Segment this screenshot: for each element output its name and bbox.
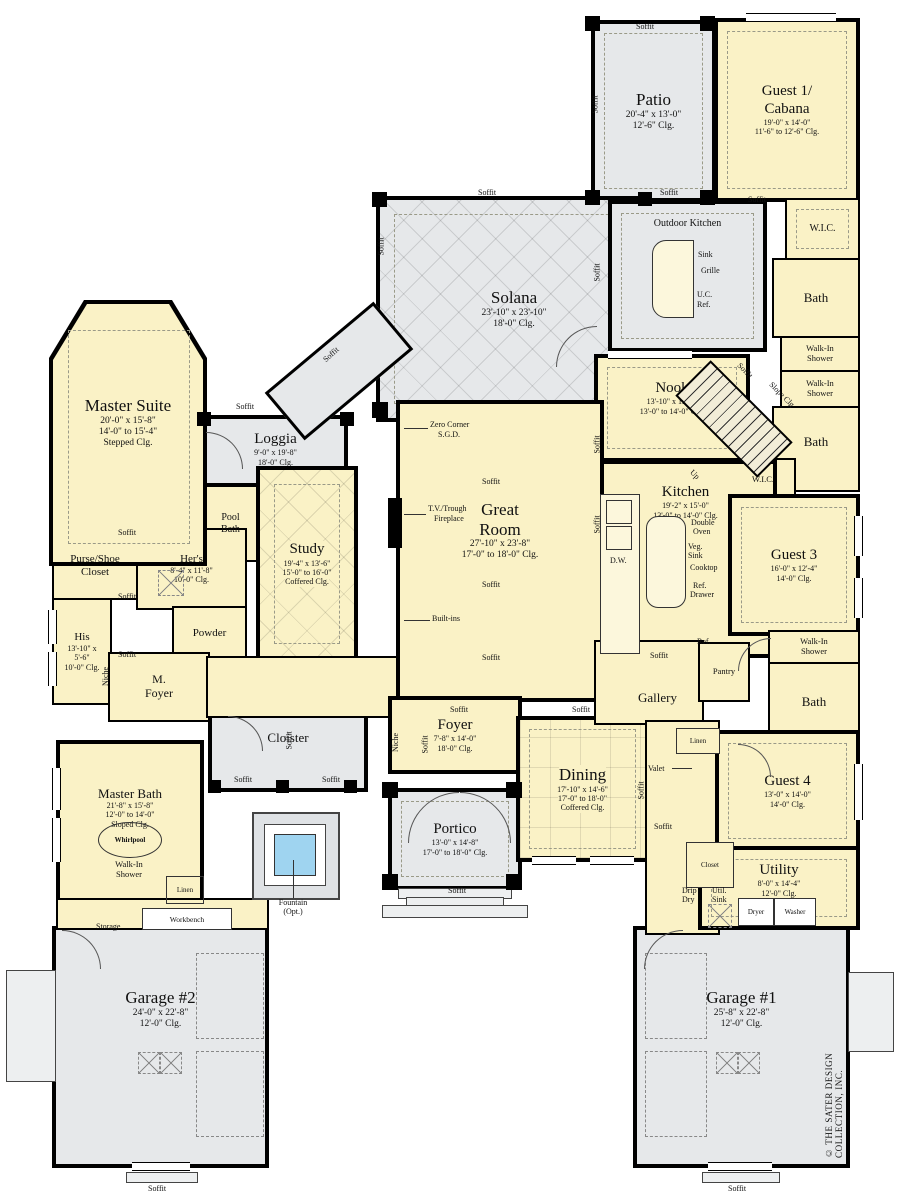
room-his-closet: His 13'-10" x 5'-6" 10'-0" Clg.: [52, 598, 112, 705]
soffit-label: Soffit: [654, 822, 672, 831]
fountain-name: Fountain: [279, 898, 307, 907]
soffit-label: Soffit: [236, 402, 254, 411]
leader-line: [404, 428, 428, 429]
hers-island: [158, 570, 184, 596]
soffit-label: Soffit: [593, 515, 602, 533]
room-name: Shower: [807, 354, 833, 364]
room-name: Bath: [804, 290, 829, 305]
room-dims: 16'-0" x 12'-4": [771, 564, 818, 573]
column-pier: [700, 16, 715, 31]
soffit-label: Soffit: [118, 650, 136, 659]
uc-ref-label: U.C.: [697, 290, 712, 299]
garage1-door: [708, 1162, 772, 1171]
room-name: Garage #1: [706, 988, 776, 1008]
cooktop-label: Cooktop: [690, 563, 718, 572]
kitchen-sink: [606, 526, 632, 550]
room-dims: 12'-0" Clg.: [140, 1019, 181, 1030]
room-dims: 8'-0" x 14'-4": [758, 879, 801, 888]
room-dims: 7'-8" x 14'-0": [434, 734, 477, 743]
workbench: Workbench: [142, 908, 232, 930]
window: [854, 516, 863, 556]
soffit-label: Soffit: [593, 263, 602, 281]
left-stoop: [6, 970, 56, 1082]
room-dims: 14'-0" Clg.: [770, 800, 805, 809]
soffit-label: Soffit: [478, 188, 496, 197]
closet: Closet: [686, 842, 734, 888]
room-dims: Stepped Clg.: [103, 438, 152, 449]
room-dims: 24'-0" x 22'-8": [133, 1008, 189, 1019]
column-pier: [506, 782, 522, 798]
room-walkin-shower-1: Walk-In Shower: [780, 336, 860, 372]
window: [608, 350, 692, 359]
room-name: Bath: [804, 434, 829, 449]
column-pier: [276, 780, 289, 793]
builtins-label: Built-ins: [432, 614, 460, 623]
soffit-label: Soffit: [748, 195, 766, 204]
column-pier: [585, 16, 600, 31]
uc-ref-label: Ref.: [697, 300, 711, 309]
soffit-label: Soffit: [591, 95, 600, 113]
leader-line: [404, 514, 426, 515]
util-sink-label: Util.: [712, 886, 726, 895]
ref-drawer-label: Drawer: [690, 590, 714, 599]
column-pier: [197, 412, 211, 426]
zero-corner-label: S.G.D.: [438, 430, 460, 439]
soffit-label: Soffit: [728, 1184, 746, 1193]
room-patio: Patio 20'-4" x 13'-0" 12'-6" Clg.: [591, 20, 716, 202]
soffit-label: Soffit: [660, 188, 678, 197]
right-stoop: [848, 972, 894, 1052]
room-name: Bath: [221, 524, 240, 536]
window: [532, 856, 576, 865]
room-pantry: Pantry: [698, 642, 750, 702]
room-dining: Dining 17'-10" x 14'-6" 17'-0" to 18'-0"…: [516, 716, 649, 862]
room-name: Master Bath: [98, 786, 162, 801]
soffit-label: Soffit: [234, 775, 252, 784]
room-name: Cabana: [765, 101, 810, 118]
valet-label: Valet: [648, 764, 664, 773]
column-pier: [372, 402, 388, 418]
room-name: Shower: [801, 647, 827, 657]
garage2-stall: [196, 1051, 264, 1137]
room-dims: 17'-10" x 14'-6": [557, 785, 608, 794]
room-name: Study: [289, 541, 324, 558]
util-sink-label: Sink: [712, 895, 727, 904]
linen-closet: Linen: [166, 876, 204, 904]
window: [48, 610, 57, 644]
room-name: Kitchen: [662, 484, 709, 501]
soffit-label: Soffit: [450, 705, 468, 714]
window: [854, 764, 863, 820]
room-study: Study 19'-4" x 13'-6" 15'-0" to 16'-0" C…: [256, 466, 358, 662]
room-name: M.: [152, 673, 166, 687]
room-name: Her's: [180, 553, 203, 566]
room-dims: 12'-6" Clg.: [633, 121, 674, 132]
room-name: Bath: [802, 694, 827, 709]
room-name: Guest 4: [764, 773, 810, 790]
window: [590, 856, 634, 865]
room-dims: 25'-8" x 22'-8": [714, 1008, 770, 1019]
garage1-column-mark: [716, 1052, 738, 1074]
room-dims: 9'-0" x 19'-8": [254, 448, 297, 457]
workbench-label: Workbench: [170, 915, 204, 924]
garage1-stall: [645, 1051, 707, 1137]
room-name: Loggia: [254, 431, 297, 448]
garage2-column-mark: [160, 1052, 182, 1074]
soffit-label: Soffit: [572, 705, 590, 714]
room-name: W.I.C.: [809, 223, 835, 235]
room-name: Solana: [491, 288, 537, 308]
ref-drawer-label: Ref.: [693, 581, 707, 590]
linen-label: Linen: [690, 737, 706, 745]
fountain-opt: (Opt.): [283, 907, 302, 916]
column-pier: [382, 782, 398, 798]
room-dims: 21'-8" x 15'-8": [107, 801, 154, 810]
niche-label: Niche: [101, 667, 110, 686]
room-guest1-cabana: Guest 1/ Cabana 19'-0" x 14'-0" 11'-6" t…: [714, 18, 860, 202]
soffit-label: Soffit: [118, 592, 136, 601]
room-dims: Coffered Clg.: [285, 577, 329, 586]
room-name: Foyer: [438, 717, 473, 734]
room-name: Outdoor Kitchen: [612, 218, 763, 230]
room-dims: 14'-0" Clg.: [777, 574, 812, 583]
room-name: Patio: [636, 90, 671, 110]
column-pier: [344, 780, 357, 793]
soffit-label: Soffit: [448, 886, 466, 895]
veg-sink-label: Veg.: [688, 542, 702, 551]
floor-plan: Patio 20'-4" x 13'-0" 12'-6" Clg. Solana…: [0, 0, 900, 1203]
room-guest-3: Guest 3 16'-0" x 12'-4" 14'-0" Clg.: [728, 494, 860, 636]
grille-label: Grille: [701, 266, 720, 275]
zero-corner-label: Zero Corner: [430, 420, 469, 429]
soffit-label: Soffit: [650, 651, 668, 660]
veg-sink-label: Sink: [688, 551, 703, 560]
room-name: Purse/Shoe: [70, 553, 120, 566]
room-name: Pool: [221, 512, 239, 524]
room-dims: 13'-0" x 14'-0": [764, 790, 811, 799]
room-name: Utility: [759, 862, 798, 879]
room-dims: 13'-10" x: [67, 644, 96, 653]
room-name: Closet: [81, 566, 109, 579]
soffit-label: Soffit: [322, 775, 340, 784]
room-walkin-shower-3: Walk-In Shower: [768, 630, 860, 664]
soffit-label: Soffit: [636, 22, 654, 31]
washer: Washer: [774, 898, 816, 926]
room-name: Garage #2: [125, 988, 195, 1008]
dryer: Dryer: [738, 898, 774, 926]
room-dims: 20'-4" x 13'-0": [626, 110, 682, 121]
room-dims: 23'-10" x 23'-10": [481, 308, 546, 319]
room-dims: 5'-6": [74, 653, 89, 662]
garage1-column-mark: [738, 1052, 760, 1074]
soffit-label: Soffit: [637, 781, 646, 799]
soffit-label: Soffit: [482, 653, 500, 662]
room-name: Shower: [807, 389, 833, 399]
storage-label: Storage: [96, 922, 120, 931]
column-pier: [372, 192, 387, 207]
room-dims: 14'-0" to 15'-4": [99, 427, 157, 438]
window: [52, 818, 61, 862]
fountain-label: Fountain (Opt.): [258, 898, 328, 917]
gallery-label: Gallery: [638, 690, 677, 706]
soffit-label: Soffit: [377, 237, 386, 255]
kitchen-island: [646, 516, 686, 608]
room-name: Foyer: [145, 687, 173, 701]
column-pier: [382, 874, 398, 890]
fireplace: [388, 498, 402, 548]
soffit-label: Soffit: [148, 1184, 166, 1193]
room-guest-4: Guest 4 13'-0" x 14'-0" 14'-0" Clg.: [715, 730, 860, 852]
room-dims: 12'-0" Clg.: [721, 1019, 762, 1030]
room-dims: 12'-0" to 14'-0": [106, 810, 155, 819]
room-name: Guest 1/: [762, 83, 812, 100]
room-name: Dining: [559, 765, 606, 785]
kitchen-sink: [606, 500, 632, 524]
room-dims: 19'-0" x 14'-0": [764, 118, 811, 127]
drip-dry-label: Dry: [682, 895, 694, 904]
column-pier: [700, 190, 715, 205]
window: [48, 652, 57, 686]
double-oven-label: Double: [691, 518, 715, 527]
garage2-column-mark: [138, 1052, 160, 1074]
fountain-pool: [274, 834, 316, 876]
room-dims: 11'-6" to 12'-6" Clg.: [755, 127, 819, 136]
room-dims: 18'-0" Clg.: [438, 744, 473, 753]
room-dims: 19'-4" x 13'-6": [284, 559, 331, 568]
master-suite-labels: Master Suite 20'-0" x 15'-8" 14'-0" to 1…: [58, 396, 198, 449]
room-dims: 10'-0" Clg.: [65, 663, 100, 672]
outdoor-kitchen-counter: [652, 240, 694, 318]
room-name: Great: [481, 500, 519, 520]
soffit-label: Soffit: [421, 735, 430, 753]
window: [746, 13, 836, 22]
hall-master-to-foyer: [206, 656, 398, 718]
column-pier: [208, 780, 221, 793]
room-dims: 12'-0" Clg.: [762, 889, 797, 898]
window: [52, 768, 61, 810]
room-name: Powder: [193, 627, 227, 640]
niche-label: Niche: [391, 733, 400, 752]
room-name: His: [74, 631, 89, 644]
column-pier: [506, 874, 522, 890]
soffit-label: Soffit: [285, 731, 294, 749]
room-name: Master Suite: [85, 396, 171, 416]
copyright-text: © THE SATER DESIGN COLLECTION, INC.: [824, 988, 844, 1158]
room-name: Guest 3: [771, 547, 817, 564]
room-name: Room: [479, 520, 521, 540]
room-dims: 18'-0" Clg.: [493, 319, 534, 330]
soffit-label: Soffit: [118, 528, 136, 537]
room-name: Shower: [116, 870, 142, 880]
room-dims: 27'-10" x 23'-8": [470, 539, 530, 550]
room-dims: Coffered Clg.: [561, 803, 605, 812]
room-dims: 15'-0" to 16'-0": [283, 568, 332, 577]
column-pier: [638, 192, 652, 206]
garage2-door: [132, 1162, 190, 1171]
fireplace-label: Fireplace: [434, 514, 464, 523]
washer-label: Washer: [785, 908, 806, 916]
soffit-label: Soffit: [482, 580, 500, 589]
dishwasher-label: D.W.: [610, 556, 627, 565]
portico-steps: [382, 905, 528, 918]
fireplace-label: T.V./Trough: [428, 504, 467, 513]
window: [854, 578, 863, 618]
whirlpool-tub: Whirlpool: [98, 822, 162, 858]
drip-dry-label: Drip: [682, 886, 697, 895]
whirlpool-label: Whirlpool: [115, 836, 146, 844]
leader-line: [404, 620, 430, 621]
room-dims: 17'-0" to 18'-0" Clg.: [423, 848, 488, 857]
garage2-stall: [196, 953, 264, 1039]
closet-label: Closet: [701, 861, 719, 869]
double-oven-label: Oven: [693, 527, 710, 536]
room-dims: 19'-2" x 15'-0": [662, 501, 709, 510]
room-dims: 17'-0" to 18'-0" Clg.: [462, 550, 539, 561]
linen-label: Linen: [177, 886, 193, 894]
util-sink: [708, 904, 732, 928]
linen-closet-2: Linen: [676, 728, 720, 754]
room-dims: 20'-0" x 15'-8": [100, 416, 156, 427]
room-wic-guest1: W.I.C.: [785, 198, 860, 260]
room-bath-guest1: Bath: [772, 258, 860, 338]
room-master-foyer: M. Foyer: [108, 652, 210, 722]
column-pier: [340, 412, 354, 426]
soffit-label: Soffit: [482, 477, 500, 486]
sink-label: Sink: [698, 250, 713, 259]
leader-line: [293, 860, 295, 898]
ref-label: Ref.: [697, 637, 711, 646]
leader-line: [672, 768, 692, 769]
room-dims: 17'-0" to 18'-0": [558, 794, 607, 803]
soffit-label: Soffit: [593, 435, 602, 453]
column-pier: [585, 190, 600, 205]
garage1-door-steps: [702, 1172, 780, 1183]
master-shower-label: Walk-In Shower: [96, 860, 162, 880]
dryer-label: Dryer: [748, 908, 764, 916]
garage2-door-steps: [126, 1172, 198, 1183]
room-name: Pantry: [713, 667, 735, 677]
